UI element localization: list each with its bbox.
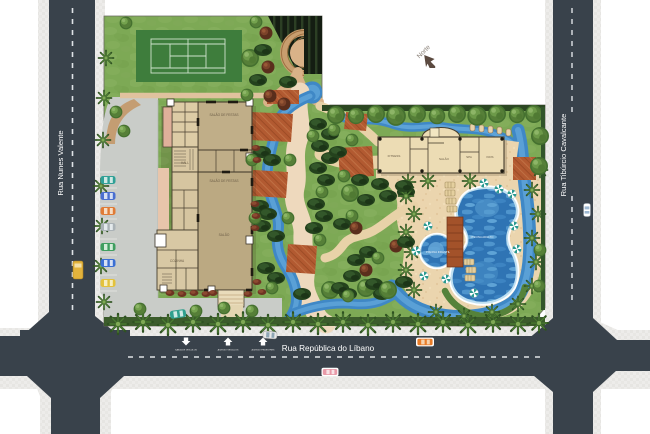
svg-text:ACESSO PEDESTRES: ACESSO PEDESTRES (252, 349, 276, 352)
svg-text:SALÃO DE FESTAS: SALÃO DE FESTAS (210, 178, 239, 183)
svg-text:Rua Tibúrcio Cavalcante: Rua Tibúrcio Cavalcante (559, 114, 568, 197)
svg-text:KIDS: KIDS (486, 155, 493, 159)
svg-text:SALÃO: SALÃO (219, 232, 230, 237)
svg-text:SPA: SPA (466, 155, 472, 159)
svg-text:FITNESS: FITNESS (388, 154, 401, 158)
svg-text:Rua Nunes Valente: Rua Nunes Valente (56, 130, 65, 195)
svg-text:ACESSO VEÍCULOS: ACESSO VEÍCULOS (218, 349, 239, 352)
svg-text:SALÃO: SALÃO (439, 156, 450, 161)
svg-text:HALL: HALL (181, 161, 189, 165)
svg-text:COZINHA: COZINHA (170, 259, 185, 263)
svg-text:SAÍDA DE VEÍCULOS: SAÍDA DE VEÍCULOS (175, 349, 197, 352)
svg-text:PISCINA INFANTIL: PISCINA INFANTIL (426, 250, 451, 254)
svg-text:SALÃO DE FESTAS: SALÃO DE FESTAS (210, 112, 239, 117)
svg-text:Rua República do Líbano: Rua República do Líbano (282, 344, 375, 353)
svg-text:PISCINA ADULTO: PISCINA ADULTO (471, 235, 495, 239)
